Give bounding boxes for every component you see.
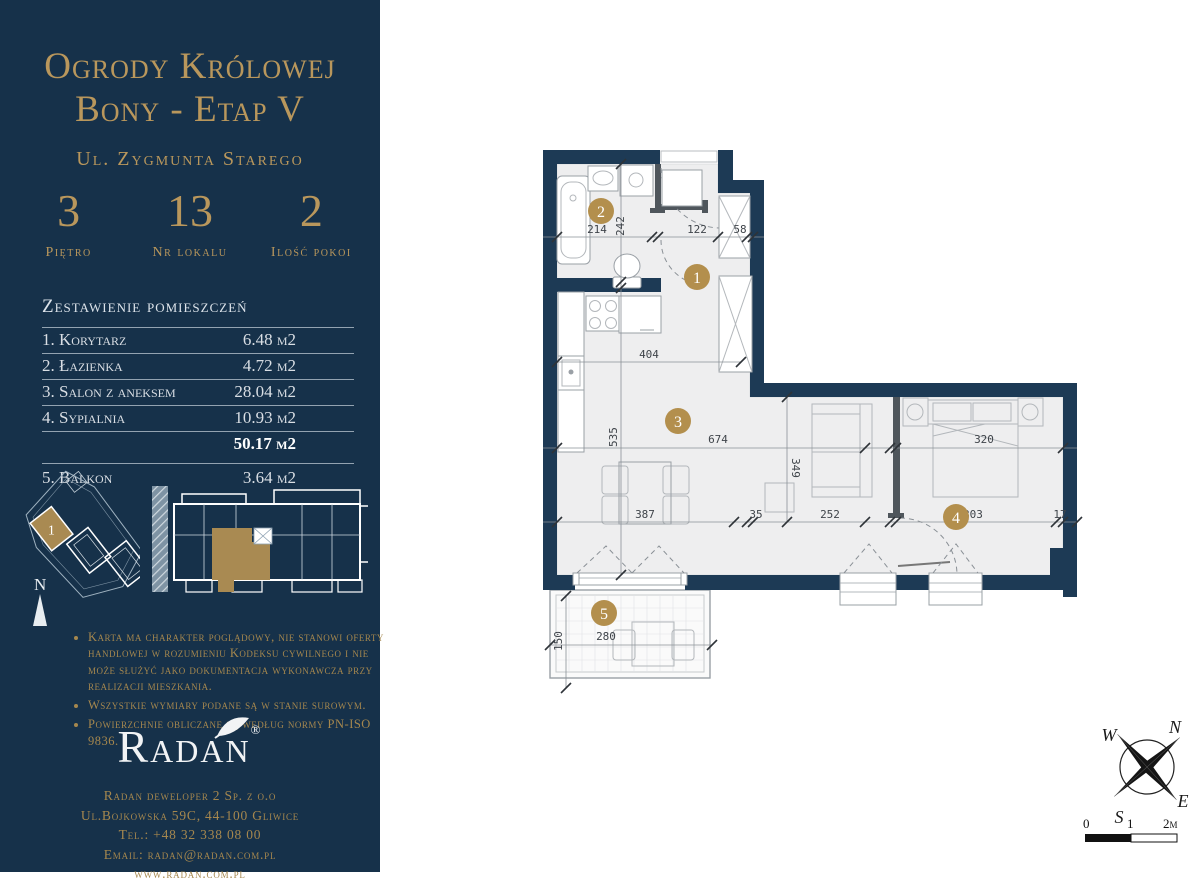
rooms-table: Zestawienie pomieszczeń 1. Korytarz 6.48…: [42, 296, 354, 491]
footer-phone: Tel.: +48 32 338 08 00: [0, 825, 380, 845]
compass-n: N: [1168, 717, 1182, 737]
rooms-table-header: Zestawienie pomieszczeń: [42, 296, 354, 318]
room-1-number: 1: [693, 270, 701, 287]
table-row: 3. Salon z aneksem 28.04 m2: [42, 379, 354, 405]
room-area: 10.93 m2: [234, 408, 296, 428]
room-area: 4.72 m2: [243, 356, 296, 376]
radan-logo: Radan®: [0, 720, 380, 773]
hatched-bar: [152, 486, 168, 592]
total-area-row: 50.17 m2: [42, 431, 354, 463]
room-area: 6.48 m2: [243, 330, 296, 350]
project-title: Ogrody Królowej Bony - Etap V: [0, 46, 380, 131]
balcony: [550, 590, 710, 678]
north-label: N: [34, 575, 46, 594]
footer-address: Ul.Bojkowska 59C, 44-100 Gliwice: [0, 806, 380, 826]
dim-404: 404: [639, 348, 659, 361]
entry-threshold: [661, 151, 717, 162]
dim-349: 349: [789, 458, 802, 478]
room-area: 28.04 m2: [234, 382, 296, 402]
dim-320: 320: [974, 433, 994, 446]
floor-plan: 214 242 122 58 404 535 674 320 349 387 3…: [500, 120, 1200, 710]
room-5-number: 5: [600, 606, 608, 623]
stat-unit-number-label: Nr lokalu: [129, 245, 250, 261]
dim-122: 122: [687, 223, 707, 236]
apartment-stats: 3 Piętro 13 Nr lokalu 2 Ilość pokoi: [8, 186, 372, 261]
note-item: Karta ma charakter poglądowy, nie stanow…: [88, 629, 390, 694]
leaf-icon: [213, 716, 257, 740]
room-3-number: 3: [674, 414, 682, 431]
dim-150: 150: [552, 631, 565, 651]
washing-machine: [620, 165, 653, 196]
stat-room-count: 2 Ilość pokoi: [251, 186, 372, 261]
stat-room-count-value: 2: [251, 186, 372, 237]
stat-floor: 3 Piętro: [8, 186, 129, 261]
room-name: 2. Łazienka: [42, 356, 123, 376]
sidebar: Ogrody Królowej Bony - Etap V Ul. Zygmun…: [0, 0, 380, 872]
footer-email: Email: radan@radan.com.pl: [0, 845, 380, 865]
project-title-line1: Ogrody Królowej: [0, 46, 380, 89]
total-area-value: 50.17 m2: [234, 434, 296, 454]
room-4-number: 4: [952, 510, 960, 527]
north-arrow-icon: [33, 594, 47, 626]
room-name: 3. Salon z aneksem: [42, 382, 176, 402]
bathtub: [557, 176, 590, 264]
dim-387: 387: [635, 508, 655, 521]
room-2-number: 2: [597, 204, 605, 221]
kitchen-counter: [558, 292, 584, 356]
footer-company: Radan deweloper 2 Sp. z o.o: [0, 786, 380, 806]
compass-w: W: [1102, 725, 1119, 745]
dim-214: 214: [587, 223, 607, 236]
site-plan: 1 N: [22, 468, 140, 633]
compass-e: E: [1177, 791, 1189, 811]
dim-35: 35: [749, 508, 762, 521]
stat-unit-number: 13 Nr lokalu: [129, 186, 250, 261]
dim-252: 252: [820, 508, 840, 521]
footer-website: www.radan.com.pl: [0, 864, 380, 884]
table-row: 1. Korytarz 6.48 m2: [42, 327, 354, 353]
stat-floor-label: Piętro: [8, 245, 129, 261]
dim-535: 535: [607, 427, 620, 447]
building-plan: [148, 478, 368, 600]
scale-bar: 0 1 2m: [1081, 816, 1185, 852]
page: { "theme":{"navy":"#16314a","wall":"#1d3…: [0, 0, 1200, 872]
kitchen-cabinet: [619, 296, 661, 333]
hall-cabinet: [662, 170, 702, 206]
scale-bar-empty: [1131, 834, 1177, 842]
project-address: Ul. Zygmunta Starego: [0, 148, 380, 171]
footer-contact: Radan deweloper 2 Sp. z o.o Ul.Bojkowska…: [0, 786, 380, 884]
dim-674: 674: [708, 433, 728, 446]
room-name: 4. Sypialnia: [42, 408, 125, 428]
stat-room-count-label: Ilość pokoi: [251, 245, 372, 261]
table-row: 4. Sypialnia 10.93 m2: [42, 405, 354, 431]
table-row: 2. Łazienka 4.72 m2: [42, 353, 354, 379]
kitchen-counter: [558, 390, 584, 452]
stat-unit-number-value: 13: [129, 186, 250, 237]
dim-17: 17: [1053, 508, 1066, 521]
dim-58: 58: [733, 223, 746, 236]
scale-bar-filled: [1085, 834, 1131, 842]
room-name: 1. Korytarz: [42, 330, 126, 350]
dim-280: 280: [596, 630, 616, 643]
dim-242: 242: [614, 216, 627, 236]
scale-0: 0: [1083, 816, 1090, 831]
project-title-line2: Bony - Etap V: [0, 89, 380, 132]
scale-1: 1: [1127, 816, 1134, 831]
washbasin: [588, 166, 618, 191]
note-item: Wszystkie wymiary podane są w stanie sur…: [88, 697, 390, 713]
scale-2m: 2m: [1163, 816, 1178, 831]
stat-floor-value: 3: [8, 186, 129, 237]
site-unit-label: 1: [48, 523, 55, 538]
